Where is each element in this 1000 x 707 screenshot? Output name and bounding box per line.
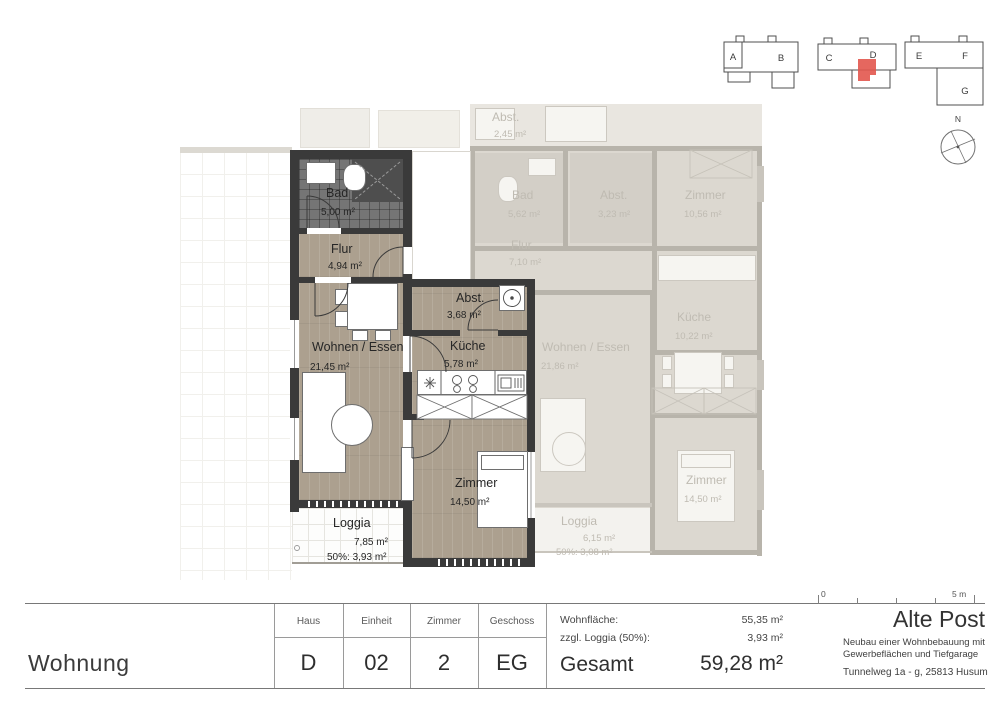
chair [335, 289, 348, 305]
adjacent-upper-room [378, 110, 460, 148]
col-header-zimmer: Zimmer [410, 616, 478, 627]
zimmer-window-glazing [432, 559, 524, 566]
wall [403, 287, 412, 336]
project-address: Tunnelweg 1a - g, 25813 Husum [843, 667, 988, 678]
room-label-bad: Bad [326, 184, 348, 202]
key-label-e: E [916, 51, 922, 62]
faded-kitchen-counter [658, 255, 756, 281]
faded-room-area: 7,10 m² [509, 252, 541, 270]
key-label-b: B [778, 53, 784, 64]
dining-table [347, 283, 398, 330]
scale-tick [974, 595, 975, 604]
room-label-kueche: Küche [450, 337, 485, 355]
col-value-zimmer: 2 [410, 650, 478, 676]
room-label-wohnen: Wohnen / Essen [312, 338, 404, 356]
table-header-rule [274, 637, 546, 638]
wall [403, 505, 412, 567]
table-divider [546, 604, 547, 688]
faded-wall [650, 290, 655, 553]
room-area-abst: 3,68 m² [447, 305, 481, 323]
faded-window-stub [757, 166, 764, 202]
faded-sink [528, 158, 556, 176]
room-area-kueche: 5,78 m² [444, 354, 478, 372]
scale-tick [896, 598, 897, 604]
sink [306, 162, 336, 184]
sliding-door-panel [401, 447, 414, 501]
room-area-zimmer: 14,50 m² [450, 492, 489, 510]
stairwell [412, 151, 471, 282]
faded-room-area: 3,23 m² [598, 204, 630, 222]
room-label-flur: Flur [331, 240, 353, 258]
loggia-door-glazing [302, 501, 400, 507]
window [527, 452, 535, 518]
living-area-label: Wohnfläche: [560, 614, 618, 626]
project-subtitle-line2: Gewerbeflächen und Tiefgarage [843, 649, 978, 660]
faded-wall [563, 146, 568, 248]
faded-room-label: Zimmer [685, 186, 726, 204]
faded-room-area: 2,45 m² [494, 124, 526, 142]
room-area-wohnen: 21,45 m² [310, 357, 349, 375]
faded-room-label: Zimmer [686, 471, 727, 489]
total-area-value: 59,28 m² [660, 652, 783, 676]
room-area-bad: 5,00 m² [321, 202, 355, 220]
faded-chair [724, 374, 734, 388]
faded-room-label: Bad [512, 186, 533, 204]
scale-zero-label: 0 [821, 589, 826, 599]
faded-wall [470, 146, 762, 151]
faded-room-label: Wohnen / Essen [542, 338, 630, 356]
wall [498, 330, 527, 336]
faded-upper-bed [545, 106, 607, 142]
scale-tick [818, 595, 819, 604]
faded-room-area: 10,22 m² [675, 326, 713, 344]
col-header-geschoss: Geschoss [478, 616, 546, 627]
col-value-einheit: 02 [343, 650, 410, 676]
room-label-abst: Abst. [456, 289, 485, 307]
faded-room-area-half: 50%: 3,08 m² [556, 542, 613, 560]
wall [290, 150, 412, 159]
room-label-zimmer: Zimmer [455, 474, 497, 492]
north-compass-icon: N [933, 110, 985, 170]
loggia-area-value: 3,93 m² [690, 632, 783, 644]
key-label-c: C [826, 53, 833, 64]
wall [299, 277, 315, 283]
scale-max-label: 5 m [952, 589, 966, 599]
kitchen-counter [417, 370, 527, 395]
scale-bar-line [25, 603, 985, 604]
wall [299, 228, 307, 234]
faded-loggia-front [535, 503, 652, 507]
key-label-a: A [730, 52, 737, 63]
titleblock-bottom-rule [25, 688, 985, 689]
room-area-loggia-half: 50%: 3,93 m² [327, 547, 386, 565]
loggia-area-label: zzgl. Loggia (50%): [560, 632, 650, 644]
faded-room-label: Flur [511, 236, 532, 254]
faded-wall [650, 413, 762, 418]
faded-room-label: Küche [677, 308, 711, 326]
col-header-haus: Haus [274, 616, 343, 627]
col-header-einheit: Einheit [343, 616, 410, 627]
wall [412, 414, 424, 420]
faded-wall [650, 550, 762, 555]
north-label: N [955, 114, 961, 124]
key-label-g: G [961, 86, 968, 97]
pillow [481, 455, 524, 470]
key-label-f: F [962, 51, 968, 62]
adjacent-upper-room [300, 108, 370, 148]
adjacent-wall-faint [180, 147, 292, 153]
room-label-loggia: Loggia [333, 514, 371, 532]
faded-room-label: Abst. [492, 108, 519, 126]
project-title: Alte Post [830, 606, 985, 633]
faded-dining-table [674, 352, 722, 394]
room-area-flur: 4,94 m² [328, 256, 362, 274]
wall [341, 228, 403, 234]
wall [527, 279, 535, 567]
faded-window-stub [757, 360, 764, 390]
window [290, 418, 299, 460]
faded-window-stub [757, 470, 764, 510]
wall [403, 372, 412, 420]
unit-type-title: Wohnung [28, 650, 130, 677]
coffee-table [331, 404, 373, 446]
window [290, 320, 299, 368]
ventilation-unit [499, 285, 525, 311]
faded-wall [652, 146, 657, 248]
adjacent-terrace-tiles [180, 152, 292, 580]
faded-pillow [681, 454, 731, 468]
wall [403, 150, 412, 247]
total-area-label: Gesamt [560, 653, 634, 677]
faded-room-label: Abst. [600, 186, 627, 204]
wall [412, 330, 460, 336]
faded-chair [662, 374, 672, 388]
faded-room-label: Loggia [561, 512, 597, 530]
faded-room-area: 5,62 m² [508, 204, 540, 222]
key-label-d: D [870, 50, 877, 61]
col-value-geschoss: EG [478, 650, 546, 676]
scale-tick [857, 598, 858, 604]
faded-chair [724, 356, 734, 370]
living-area-value: 55,35 m² [690, 614, 783, 626]
chair [335, 311, 348, 327]
faded-chair [662, 356, 672, 370]
key-plan-outlines [724, 36, 983, 105]
floorplan-sheet: A B C D E F G N [0, 0, 1000, 707]
faded-room-area: 14,50 m² [684, 489, 722, 507]
col-value-haus: D [274, 650, 343, 676]
faded-room-area: 10,56 m² [684, 204, 722, 222]
faded-round-table [552, 432, 586, 466]
faded-room-area: 21,86 m² [541, 356, 579, 374]
scale-tick [935, 598, 936, 604]
project-subtitle-line1: Neubau einer Wohnbebauung mit [843, 637, 985, 648]
